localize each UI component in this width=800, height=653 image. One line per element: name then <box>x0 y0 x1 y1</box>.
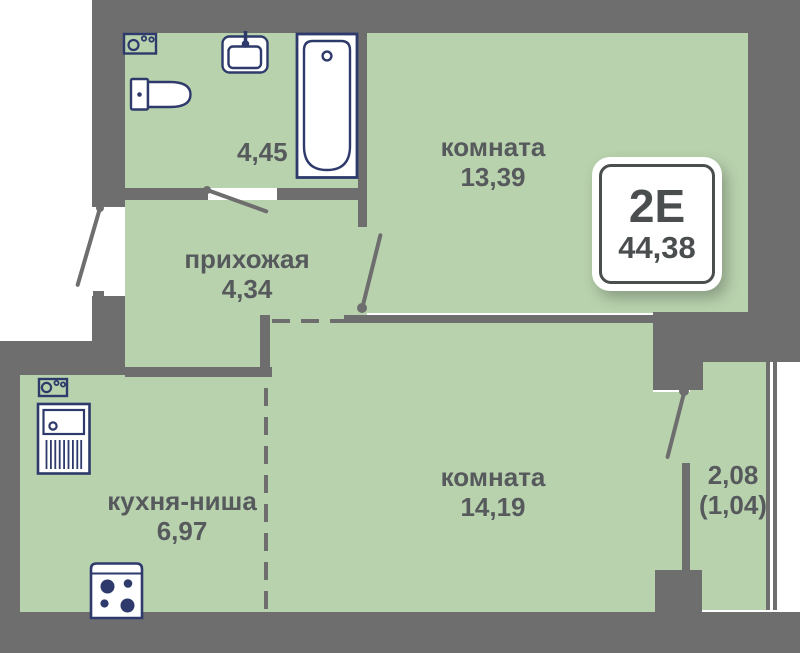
area-reduced-value: (1,04) <box>699 490 767 520</box>
area-value: 14,19 <box>441 492 546 522</box>
area-value: 4,45 <box>237 137 288 167</box>
room-top-label: комната 13,39 <box>441 132 546 192</box>
area-value: 4,34 <box>184 274 309 304</box>
hallway-label: прихожая 4,34 <box>184 244 309 304</box>
toilet-icon <box>131 79 191 110</box>
area-value: 6,97 <box>107 516 257 546</box>
fixtures-layer <box>0 0 800 653</box>
apartment-type-badge-frame: 2Е 44,38 <box>599 164 715 284</box>
total-area: 44,38 <box>618 231 696 265</box>
room-name: прихожая <box>184 244 309 274</box>
floor-plan: 4,45 комната 13,39 прихожая 4,34 кухня-н… <box>0 0 800 653</box>
sink-icon <box>223 31 268 73</box>
apartment-type-badge: 2Е 44,38 <box>592 157 722 291</box>
washing-machine-icon <box>39 379 67 396</box>
area-value: 13,39 <box>441 162 546 192</box>
room-bottom-label: комната 14,19 <box>441 462 546 522</box>
washing-machine-icon <box>124 34 156 54</box>
room-name: кухня-ниша <box>107 486 257 516</box>
bathtub-icon <box>297 34 357 178</box>
area-value: 2,08 <box>699 460 767 490</box>
balcony-label: 2,08 (1,04) <box>699 460 767 520</box>
room-name: комната <box>441 462 546 492</box>
kitchen-sink-icon <box>38 404 90 474</box>
room-name: комната <box>441 132 546 162</box>
stove-icon <box>91 564 142 619</box>
layout-type: 2Е <box>629 183 685 229</box>
kitchen-label: кухня-ниша 6,97 <box>107 486 257 546</box>
